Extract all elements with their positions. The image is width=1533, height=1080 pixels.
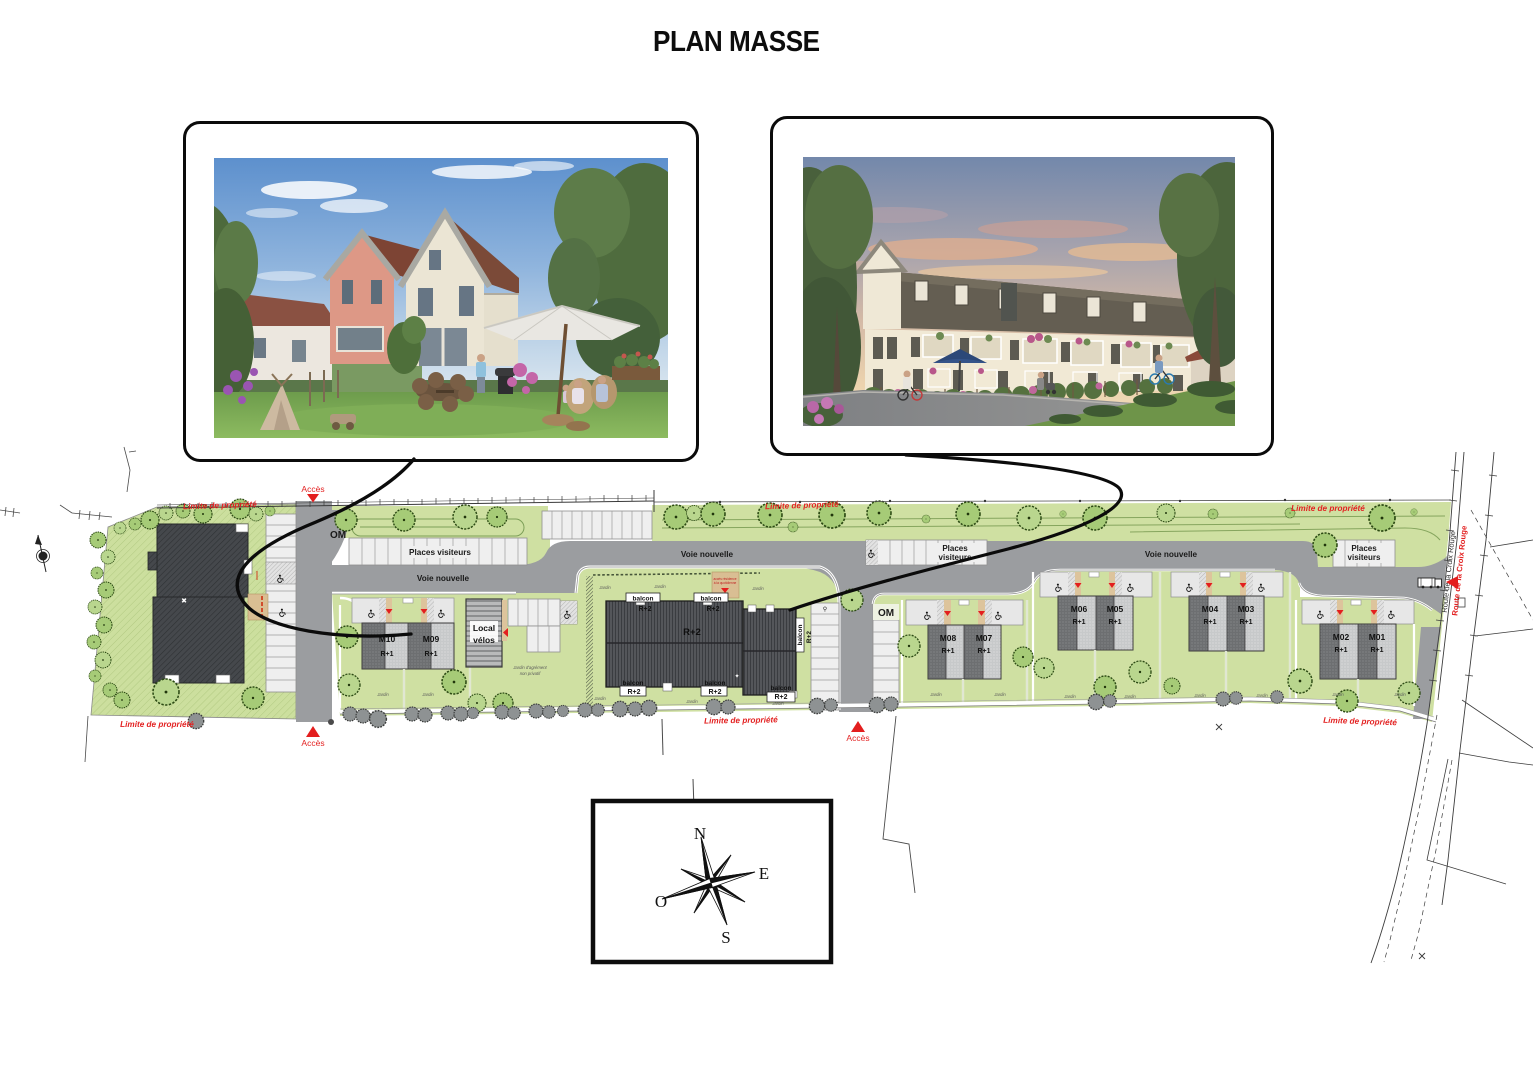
svg-text:Places: Places	[1351, 544, 1377, 553]
svg-text:M05: M05	[1107, 604, 1124, 614]
svg-text:R+2: R+2	[627, 689, 640, 696]
svg-text:visiteurs: visiteurs	[1348, 553, 1381, 562]
svg-text:à la quotidienne: à la quotidienne	[714, 581, 737, 585]
svg-text:Jardin: Jardin	[421, 692, 434, 697]
svg-text:Voie nouvelle: Voie nouvelle	[1145, 550, 1198, 559]
svg-text:R+2: R+2	[706, 606, 719, 613]
svg-text:R+1: R+1	[424, 651, 437, 658]
svg-text:O: O	[655, 892, 667, 911]
svg-text:M07: M07	[976, 633, 993, 643]
svg-text:vélos: vélos	[473, 635, 495, 645]
svg-text:Local: Local	[473, 623, 495, 633]
svg-text:balcon: balcon	[633, 596, 654, 603]
svg-text:Jardin: Jardin	[1193, 693, 1206, 698]
svg-text:M02: M02	[1333, 632, 1350, 642]
svg-text:Places: Places	[942, 544, 968, 553]
svg-text:Jardin d'agrément: Jardin d'agrément	[512, 665, 547, 670]
svg-text:Jardin: Jardin	[993, 692, 1006, 697]
svg-text:M01: M01	[1369, 632, 1386, 642]
svg-text:S: S	[721, 928, 730, 947]
svg-text:Jardin: Jardin	[653, 584, 666, 589]
svg-text:N: N	[694, 824, 706, 843]
svg-text:✖: ✖	[181, 598, 187, 605]
svg-text:balcon: balcon	[771, 685, 792, 692]
svg-text:Jardin: Jardin	[685, 699, 698, 704]
svg-text:Limite de propriété: Limite de propriété	[1323, 716, 1397, 728]
svg-text:R+1: R+1	[380, 651, 393, 658]
svg-text:Jardin: Jardin	[1331, 692, 1344, 697]
svg-text:R+2: R+2	[806, 631, 813, 643]
svg-text:Places visiteurs: Places visiteurs	[409, 548, 471, 557]
svg-text:Jardin: Jardin	[1063, 694, 1076, 699]
svg-text:Jardin: Jardin	[751, 586, 764, 591]
svg-text:R+1: R+1	[1239, 619, 1252, 626]
svg-text:R+1: R+1	[1203, 619, 1216, 626]
svg-text:R+1: R+1	[1370, 647, 1383, 654]
svg-text:Accès: Accès	[301, 484, 324, 494]
svg-text:Jardin: Jardin	[1123, 694, 1136, 699]
svg-text:M03: M03	[1238, 604, 1255, 614]
svg-text:OM: OM	[330, 530, 346, 541]
svg-text:Jardin: Jardin	[376, 692, 389, 697]
svg-text:M09: M09	[423, 634, 440, 644]
svg-text:R+2: R+2	[683, 627, 701, 638]
svg-text:Jardin: Jardin	[1393, 692, 1406, 697]
svg-text:Limite de propriété: Limite de propriété	[120, 720, 194, 729]
svg-text:Accès: Accès	[846, 733, 869, 743]
svg-text:Limite de propriété: Limite de propriété	[1291, 504, 1365, 513]
svg-text:R+1: R+1	[1072, 619, 1085, 626]
svg-text:M04: M04	[1202, 604, 1219, 614]
svg-text:R+1: R+1	[941, 648, 954, 655]
svg-text:M06: M06	[1071, 604, 1088, 614]
svg-text:R+2: R+2	[708, 689, 721, 696]
svg-text:R+1: R+1	[977, 648, 990, 655]
svg-text:Voie nouvelle: Voie nouvelle	[681, 550, 734, 559]
svg-text:E: E	[759, 864, 769, 883]
svg-text:Jardin: Jardin	[771, 701, 784, 706]
svg-text:OM: OM	[878, 608, 894, 619]
svg-text:balcon: balcon	[797, 624, 804, 645]
svg-text:Accès: Accès	[301, 738, 324, 748]
svg-text:✦: ✦	[734, 673, 739, 680]
svg-text:Limite de propriété: Limite de propriété	[704, 715, 778, 725]
svg-text:Jardin: Jardin	[598, 585, 611, 590]
svg-text:non privatif: non privatif	[520, 671, 541, 676]
svg-text:⚲: ⚲	[823, 606, 827, 613]
svg-text:M08: M08	[940, 633, 957, 643]
svg-text:Voie nouvelle: Voie nouvelle	[417, 574, 470, 583]
svg-text:Jardin: Jardin	[929, 692, 942, 697]
svg-text:R+1: R+1	[1334, 647, 1347, 654]
svg-text:R+1: R+1	[1108, 619, 1121, 626]
svg-text:Jardin: Jardin	[593, 696, 606, 701]
svg-text:R+2: R+2	[774, 694, 787, 701]
svg-text:R+2: R+2	[638, 606, 651, 613]
svg-text:Jardin: Jardin	[1255, 693, 1268, 698]
svg-text:balcon: balcon	[701, 596, 722, 603]
